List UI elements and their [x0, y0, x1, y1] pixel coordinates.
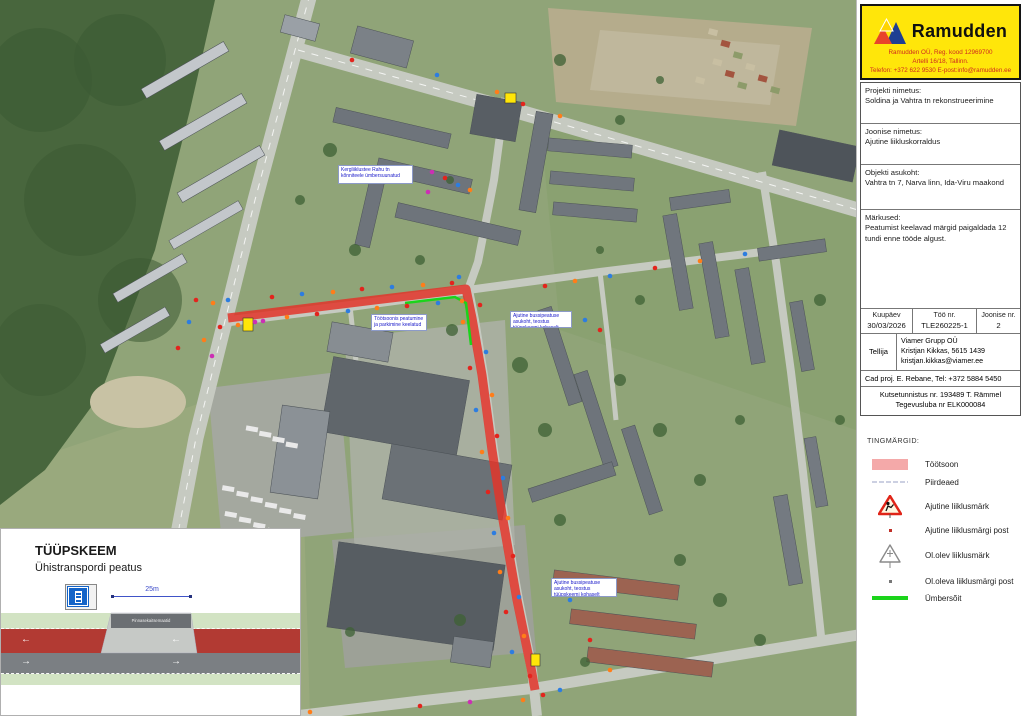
legend-item-label: Piirdeaed — [925, 478, 959, 487]
closed-lane-strip — [1, 629, 300, 653]
project-name-label: Projekti nimetus: — [865, 86, 1016, 96]
legend-item-label: Töötsoon — [925, 460, 958, 469]
traffic-sign-marker — [608, 668, 613, 673]
traffic-sign-marker — [210, 354, 215, 359]
certificate-section: Kutsetunnistus nr. 193489 T. Rämmel Tege… — [861, 387, 1020, 415]
client-label: Tellija — [861, 334, 897, 370]
traffic-sign-marker — [528, 674, 533, 679]
client-email: kristjan.kikkas@viamer.ee — [901, 357, 1018, 367]
traffic-sign-marker — [435, 73, 440, 78]
traffic-sign-marker — [490, 393, 495, 398]
map-note: Kergliiklustee Rahu tn kõnniteele ümbers… — [338, 165, 413, 184]
typical-scheme-inset: TÜÜPSKEEM Ühistranspordi peatus Pinnasek… — [0, 528, 301, 716]
traffic-sign-marker — [426, 190, 431, 195]
company-reg-line: Ramudden OÜ, Reg. kood 12969700 — [862, 48, 1019, 57]
traffic-sign-marker — [522, 634, 527, 639]
traffic-sign-marker — [430, 170, 435, 175]
existing-sign-post-dot-icon — [889, 580, 892, 583]
traffic-sign-marker — [375, 306, 380, 311]
bus-stop-sign-face — [68, 587, 88, 606]
lane-arrow-right: → — [171, 657, 181, 667]
legend-item-temporary-post: Ajutine liiklusmärgi post — [867, 526, 1024, 535]
traffic-sign-marker — [421, 283, 426, 288]
traffic-sign-marker — [346, 309, 351, 314]
traffic-sign-marker — [315, 312, 320, 317]
traffic-sign-marker — [211, 301, 216, 306]
detour-line-icon — [872, 596, 908, 600]
bus-stop-sign — [65, 584, 97, 610]
traffic-sign-marker — [480, 450, 485, 455]
cad-designer-label: Cad proj. — [865, 374, 895, 383]
traffic-sign-marker — [543, 284, 548, 289]
traffic-sign-marker — [350, 58, 355, 63]
title-block-panel: Ramudden Ramudden OÜ, Reg. kood 12969700… — [856, 0, 1024, 716]
legend-item-label: Ümbersõit — [925, 594, 961, 603]
project-name-section: Projekti nimetus: Soldina ja Vahtra tn r… — [861, 83, 1020, 124]
work-number-label: Töö nr. — [914, 311, 975, 319]
traffic-sign-marker — [498, 570, 503, 575]
client-section: Tellija Viamer Grupp OÜ Kristjan Kikkas,… — [861, 334, 1020, 371]
cad-designer-value: E. Rebane, Tel: +372 5884 5450 — [897, 374, 1002, 383]
client-company: Viamer Grupp OÜ — [901, 337, 1018, 347]
legend-item-temporary-sign: Ajutine liiklusmärk — [867, 495, 1024, 518]
legend-item-existing-post: Ol.oleva liiklusmärgi post — [867, 577, 1024, 586]
traffic-sign-marker — [558, 688, 563, 693]
traffic-sign-marker — [588, 638, 593, 643]
dimension-label: 25m — [129, 586, 175, 593]
traffic-sign-marker — [743, 252, 748, 257]
legend-item-label: Ajutine liiklusmärgi post — [925, 526, 1009, 535]
traffic-sign-marker — [253, 320, 258, 325]
temporary-info-sign — [243, 318, 253, 331]
date-label: Kuupäev — [862, 311, 911, 319]
traffic-sign-marker — [285, 315, 290, 320]
workzone-swatch-icon — [872, 459, 908, 470]
lane-edge-line — [1, 673, 300, 674]
traffic-sign-marker — [573, 279, 578, 284]
traffic-sign-marker — [521, 698, 526, 703]
map-note: Ajutine bussipeatuse asukoht, teostus tü… — [551, 578, 617, 597]
verge-strip — [1, 674, 300, 685]
lane-arrow-left: ← — [171, 635, 181, 645]
sand-patch — [90, 376, 186, 428]
legend-item-label: Ol.oleva liiklusmärgi post — [925, 577, 1013, 586]
traffic-sign-marker — [390, 285, 395, 290]
traffic-sign-marker — [504, 610, 509, 615]
traffic-sign-marker — [510, 650, 515, 655]
traffic-sign-marker — [218, 325, 223, 330]
client-contact-person: Kristjan Kikkas, 5615 1439 — [901, 347, 1018, 357]
bus-pictogram — [75, 591, 82, 603]
notes-section: Märkused: Peatumist keelavad märgid paig… — [861, 210, 1020, 309]
traffic-sign-marker — [598, 328, 603, 333]
traffic-sign-marker — [486, 490, 491, 495]
map-note: Töötsoonis peatumine ja parkimine keelat… — [371, 314, 427, 331]
open-lane-strip — [1, 653, 300, 674]
traffic-sign-marker — [194, 298, 199, 303]
traffic-sign-marker — [541, 693, 546, 698]
traffic-sign-marker — [187, 320, 192, 325]
work-number-cell: Töö nr. TLE260225-1 — [913, 309, 977, 333]
legend-item-fence: Piirdeaed — [867, 478, 1024, 487]
traffic-sign-marker — [270, 295, 275, 300]
object-location-value: Vahtra tn 7, Narva linn, Ida-Viru maakon… — [865, 178, 1004, 187]
traffic-sign-marker — [418, 704, 423, 709]
company-contact-line: Telefon: +372 622 9530 E-post:info@ramud… — [862, 66, 1019, 75]
drawing-info-box: Projekti nimetus: Soldina ja Vahtra tn r… — [860, 82, 1021, 416]
client-details: Viamer Grupp OÜ Kristjan Kikkas, 5615 14… — [897, 334, 1020, 370]
legend-item-existing-sign: Ol.olev liiklusmärk — [867, 543, 1024, 569]
traffic-sign-marker — [461, 320, 466, 325]
dimension-line — [112, 596, 191, 599]
traffic-sign-marker — [517, 595, 522, 600]
lane-arrow-right: → — [21, 657, 31, 667]
traffic-sign-marker — [202, 338, 207, 343]
traffic-sign-marker — [226, 298, 231, 303]
cad-designer-section: Cad proj. E. Rebane, Tel: +372 5884 5450 — [861, 371, 1020, 387]
traffic-sign-marker — [495, 90, 500, 95]
sheet-number-value: 2 — [978, 321, 1019, 330]
traffic-sign-marker — [484, 350, 489, 355]
drawing-name-value: Ajutine liikluskorraldus — [865, 137, 940, 146]
traffic-sign-marker — [456, 183, 461, 188]
legend-title: TINGMÄRGID: — [867, 436, 1024, 445]
traffic-management-plan: { "title_block": { "logo": { "brand": "R… — [0, 0, 1024, 716]
traffic-sign-marker — [474, 408, 479, 413]
traffic-sign-marker — [492, 531, 497, 536]
traffic-sign-marker — [331, 290, 336, 295]
traffic-sign-marker — [443, 176, 448, 181]
platform-label: Pinnasekaitsemaatid — [111, 614, 191, 628]
lane-edge-line — [1, 628, 300, 629]
legend-item-workzone: Töötsoon — [867, 459, 1024, 470]
project-name-value: Soldina ja Vahtra tn rekonstrueerimine — [865, 96, 994, 105]
traffic-sign-marker — [468, 188, 473, 193]
temporary-roadworks-sign-icon — [878, 495, 902, 518]
traffic-sign-marker — [261, 319, 266, 324]
dimension-end-tick — [111, 595, 114, 598]
traffic-sign-marker — [405, 304, 410, 309]
inset-title: TÜÜPSKEEM — [35, 543, 117, 558]
traffic-sign-marker — [468, 700, 473, 705]
traffic-sign-marker — [558, 114, 563, 119]
company-street-line: Artelli 16/18, Tallinn. — [862, 57, 1019, 66]
temporary-sign-post-dot-icon — [889, 529, 892, 532]
existing-sign-icon — [878, 543, 902, 569]
legend: TINGMÄRGID: Töötsoon Piirdeaed — [857, 436, 1024, 603]
traffic-sign-marker — [511, 554, 516, 559]
legend-item-label: Ol.olev liiklusmärk — [925, 551, 989, 560]
traffic-sign-marker — [308, 710, 313, 715]
sheet-number-cell: Joonise nr. 2 — [977, 309, 1020, 333]
traffic-sign-marker — [360, 287, 365, 292]
brand-name: Ramudden — [912, 21, 1007, 42]
ramudden-logo-icon — [874, 18, 908, 44]
temporary-info-sign — [505, 93, 516, 103]
date-value: 30/03/2026 — [862, 321, 911, 330]
sheet-number-label: Joonise nr. — [978, 311, 1019, 319]
fence-line-icon — [872, 480, 908, 484]
dimension-end-tick — [189, 595, 192, 598]
traffic-sign-marker — [495, 434, 500, 439]
traffic-sign-marker — [450, 281, 455, 286]
notes-label: Märkused: — [865, 213, 1016, 223]
traffic-sign-marker — [568, 598, 573, 603]
date-cell: Kuupäev 30/03/2026 — [861, 309, 913, 333]
inset-subtitle: Ühistranspordi peatus — [35, 562, 142, 574]
traffic-sign-marker — [478, 303, 483, 308]
drawing-name-section: Joonise nimetus: Ajutine liikluskorraldu… — [861, 124, 1020, 165]
object-location-section: Objekti asukoht: Vahtra tn 7, Narva linn… — [861, 165, 1020, 210]
traffic-sign-marker — [176, 346, 181, 351]
traffic-sign-marker — [300, 292, 305, 297]
traffic-sign-marker — [501, 476, 506, 481]
traffic-sign-marker — [457, 275, 462, 280]
lane-arrow-left: ← — [21, 635, 31, 645]
object-location-label: Objekti asukoht: — [865, 168, 1016, 178]
traffic-sign-marker — [506, 516, 511, 521]
traffic-sign-marker — [468, 366, 473, 371]
work-number-value: TLE260225-1 — [914, 321, 975, 330]
traffic-sign-marker — [460, 299, 465, 304]
company-address: Ramudden OÜ, Reg. kood 12969700 Artelli … — [862, 48, 1019, 75]
legend-item-label: Ajutine liiklusmärk — [925, 502, 989, 511]
traffic-sign-marker — [608, 274, 613, 279]
license-number: Tegevusluba nr ELK000084 — [863, 400, 1018, 411]
traffic-sign-marker — [698, 259, 703, 264]
traffic-sign-marker — [653, 266, 658, 271]
company-logo-box: Ramudden Ramudden OÜ, Reg. kood 12969700… — [860, 4, 1021, 80]
temporary-info-sign — [531, 654, 540, 666]
map-note: Ajutine bussipeatuse asukoht, teostus tü… — [510, 311, 572, 328]
traffic-sign-marker — [521, 102, 526, 107]
traffic-sign-marker — [436, 301, 441, 306]
traffic-sign-marker — [236, 323, 241, 328]
notes-value: Peatumist keelavad märgid paigaldada 12 … — [865, 223, 1006, 242]
legend-item-detour: Ümbersõit — [867, 594, 1024, 603]
date-work-sheet-table: Kuupäev 30/03/2026 Töö nr. TLE260225-1 J… — [861, 309, 1020, 334]
certificate-number: Kutsetunnistus nr. 193489 T. Rämmel — [863, 390, 1018, 401]
traffic-sign-marker — [583, 318, 588, 323]
drawing-name-label: Joonise nimetus: — [865, 127, 1016, 137]
